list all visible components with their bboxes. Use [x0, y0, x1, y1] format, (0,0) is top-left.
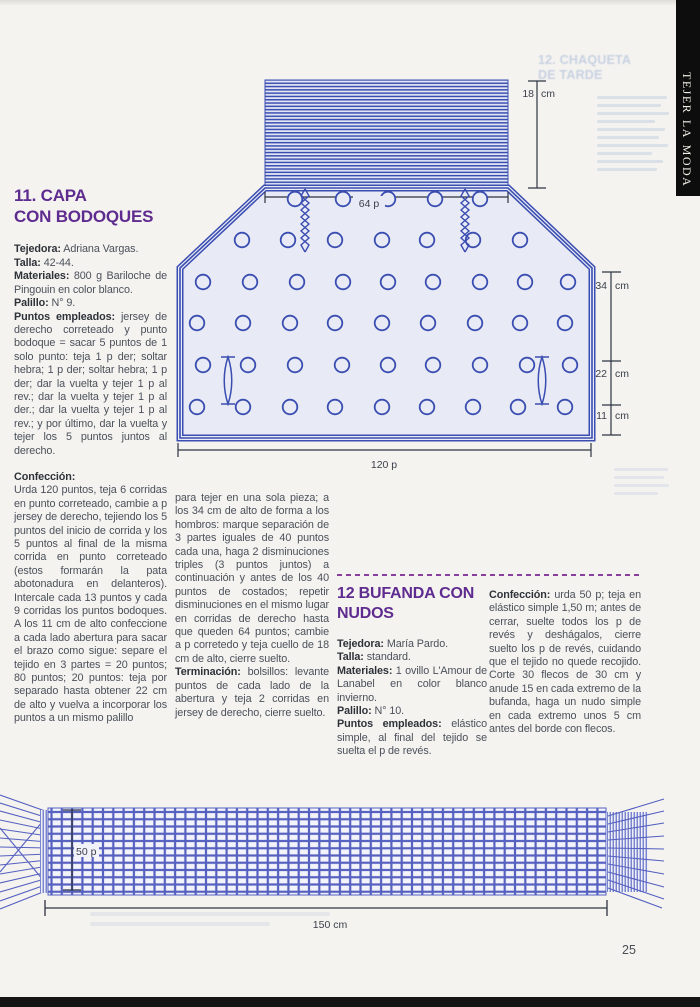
measure-120p	[178, 443, 591, 457]
label-18: 18	[522, 88, 534, 100]
section-11-column-2: para tejer en una sola pieza; a los 34 c…	[175, 492, 329, 720]
scarf-fringe-left	[0, 795, 48, 909]
detail-row: Materiales: 1 ovillo L'Amour de Lanabel …	[337, 665, 487, 705]
scarf-fringe-right	[608, 799, 664, 908]
bottom-bar	[0, 997, 700, 1007]
cape-collar-ribbing	[265, 80, 508, 188]
section-12-column-1: 12 BUFANDA CON NUDOS Tejedora: María Par…	[337, 584, 487, 759]
cape-diagram: 18 cm	[178, 80, 629, 471]
confeccion-paragraph: Confección: Urda 120 puntos, teja 6 corr…	[14, 471, 167, 726]
label-11: 11	[596, 410, 607, 422]
label-22-cm: cm	[615, 368, 629, 380]
ghost-smudge	[90, 912, 340, 932]
label-50p: 50 p	[76, 846, 97, 858]
label-22: 22	[595, 368, 607, 380]
ghost-paragraph-lines-2	[614, 468, 670, 500]
ghost-heading-1: 12. CHAQUETA	[538, 53, 631, 67]
ghost-heading-2: DE TARDE	[538, 68, 603, 82]
label-50p-backdrop	[74, 844, 99, 857]
detail-row: Materiales: 800 g Bariloche de Pingouin …	[14, 270, 167, 297]
label-120p: 120 p	[371, 459, 397, 471]
label-34: 34	[595, 280, 607, 292]
scarf-knot-left	[40, 810, 48, 893]
measure-heights	[602, 272, 621, 435]
section-12-column-2: Confección: urda 50 p; teja en elástico …	[489, 589, 641, 736]
detail-row: Tejedora: María Pardo.	[337, 638, 487, 651]
confeccion-continued: para tejer en una sola pieza; a los 34 c…	[175, 492, 329, 666]
label-18-cm: cm	[541, 88, 555, 100]
label-34-cm: cm	[615, 280, 629, 292]
detail-row: Puntos empleados: jersey de derecho corr…	[14, 311, 167, 458]
bodoque-circles	[190, 192, 578, 415]
side-section-bar: tejer la moda	[676, 0, 700, 196]
chain-stitches	[301, 189, 469, 252]
section-12-title: 12 BUFANDA CON NUDOS	[337, 584, 487, 623]
label-64p-backdrop	[353, 196, 385, 209]
page-number: 25	[622, 943, 636, 957]
detail-row: Palillo: N° 9.	[14, 297, 167, 310]
detail-row: Talla: 42-44.	[14, 257, 167, 270]
scarf-mesh	[48, 808, 606, 895]
scarf-diagram: 50 p 150 cm	[0, 795, 664, 931]
detail-row: Talla: standard.	[337, 651, 487, 664]
scarf-knot-right	[606, 812, 648, 892]
confeccion-paragraph-12: Confección: urda 50 p; teja en elástico …	[489, 589, 641, 736]
detail-row: Palillo: N° 10.	[337, 705, 487, 718]
magazine-page: 12. CHAQUETA DE TARDE	[0, 0, 700, 1007]
section-11-title: 11. CAPA CON BODOQUES	[14, 186, 167, 227]
side-section-label: tejer la moda	[678, 72, 698, 187]
ghost-paragraph-lines	[597, 96, 671, 176]
section-divider-dashed	[337, 574, 640, 576]
measure-64p	[265, 192, 508, 203]
measure-18cm	[528, 81, 546, 188]
terminacion-paragraph: Terminación: bolsillos: levante puntos d…	[175, 666, 329, 720]
section-11-column-1: 11. CAPA CON BODOQUES Tejedora: Adriana …	[14, 186, 167, 726]
label-64p: 64 p	[359, 198, 380, 210]
detail-row: Tejedora: Adriana Vargas.	[14, 243, 167, 256]
label-11-cm: cm	[615, 410, 629, 422]
armhole-marks	[221, 357, 549, 404]
detail-row: Puntos empleados: elástico simple, al fi…	[337, 718, 487, 758]
cape-outline	[180, 188, 592, 438]
measure-50p	[63, 810, 81, 890]
